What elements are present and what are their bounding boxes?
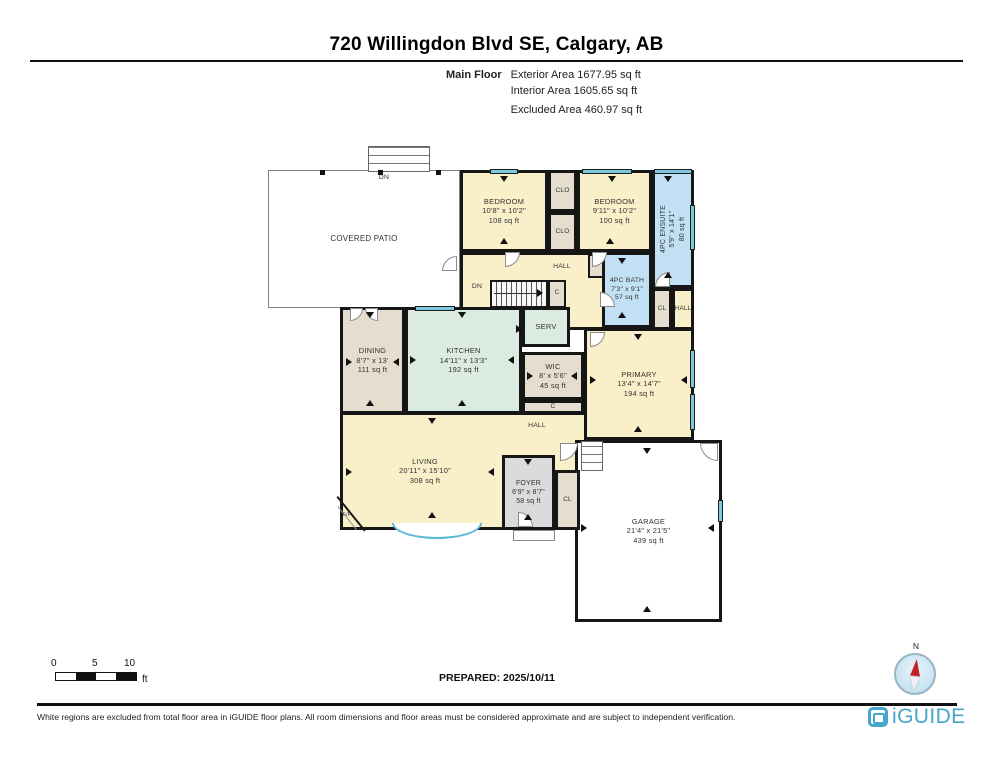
room-name: BEDROOM bbox=[484, 197, 524, 207]
scale-tick-10: 10 bbox=[124, 658, 135, 669]
closet-clo-top: CLO bbox=[548, 170, 577, 212]
room-name: WIC bbox=[545, 362, 560, 372]
iguide-logo: iGUIDE bbox=[868, 707, 966, 727]
dimension-arrow bbox=[366, 312, 374, 318]
dimension-arrow bbox=[393, 358, 399, 366]
window bbox=[582, 169, 632, 174]
room-area: 192 sq ft bbox=[448, 365, 479, 375]
compass-icon bbox=[894, 653, 936, 695]
room-area: 439 sq ft bbox=[633, 536, 664, 546]
room-area: 194 sq ft bbox=[624, 389, 655, 399]
dimension-arrow bbox=[643, 448, 651, 454]
dimension-arrow bbox=[500, 238, 508, 244]
window bbox=[690, 350, 695, 388]
dimension-arrow bbox=[516, 325, 522, 333]
closet-cl-mid: CL bbox=[652, 288, 672, 330]
dimension-arrow bbox=[500, 176, 508, 182]
dimension-arrow bbox=[428, 512, 436, 518]
bay-window bbox=[392, 523, 482, 539]
floor-plan: COVERED PATIO DN LIVING 20'11" x 15'10" … bbox=[0, 0, 993, 768]
dimension-arrow bbox=[410, 356, 416, 364]
room-ensuite: 4PC ENSUITE 5'9" x 14'1" 80 sq ft bbox=[652, 170, 694, 288]
stairs-direction-line bbox=[494, 293, 538, 294]
room-area: 111 sq ft bbox=[358, 365, 387, 375]
room-covered-patio: COVERED PATIO bbox=[268, 170, 460, 308]
dimension-arrow bbox=[366, 400, 374, 406]
room-dims: 8'7" x 13' bbox=[356, 356, 388, 366]
room-dims: 14'11" x 13'3" bbox=[440, 356, 488, 366]
room-area: 108 sq ft bbox=[489, 216, 520, 226]
dimension-arrow bbox=[643, 606, 651, 612]
room-primary: PRIMARY 13'4" x 14'7" 194 sq ft bbox=[584, 328, 694, 440]
room-area: 80 sq ft bbox=[678, 217, 688, 242]
room-dims: 8' x 5'6" bbox=[539, 371, 567, 381]
closet-label: CL bbox=[658, 304, 666, 314]
dimension-arrow bbox=[618, 258, 626, 264]
scale-bar bbox=[55, 672, 137, 681]
dimension-arrow bbox=[681, 376, 687, 384]
footer-disclaimer: White regions are excluded from total fl… bbox=[37, 712, 827, 722]
room-name: 4PC ENSUITE bbox=[659, 205, 669, 253]
window bbox=[654, 169, 692, 174]
dimension-arrow bbox=[346, 358, 352, 366]
camera-glyph bbox=[873, 713, 885, 724]
room-area: 58 sq ft bbox=[516, 497, 541, 506]
room-dims: 10'8" x 10'2" bbox=[482, 206, 526, 216]
room-bath: 4PC BATH 7'3" x 9'1" 57 sq ft bbox=[602, 252, 652, 328]
compass-needle-south bbox=[909, 676, 920, 691]
stairs-direction-arrow bbox=[537, 289, 543, 297]
room-hall-mid: HALL bbox=[672, 288, 694, 330]
dimension-arrow bbox=[458, 312, 466, 318]
serv-label: SERV bbox=[535, 322, 556, 332]
iguide-logo-icon bbox=[868, 707, 888, 727]
closet-label: C bbox=[555, 289, 560, 299]
room-dims: 5'9" x 14'1" bbox=[668, 211, 678, 248]
room-serv: SERV bbox=[522, 307, 570, 347]
window bbox=[718, 500, 723, 522]
room-dims: 7'3" x 9'1" bbox=[611, 286, 643, 295]
room-name: BEDROOM bbox=[594, 197, 634, 207]
dimension-arrow bbox=[608, 176, 616, 182]
dimension-arrow bbox=[488, 468, 494, 476]
room-name: GARAGE bbox=[632, 517, 665, 527]
room-area: 57 sq ft bbox=[615, 294, 639, 303]
dimension-arrow bbox=[508, 356, 514, 364]
closet-label: CLO bbox=[556, 186, 570, 196]
compass-needle-north bbox=[910, 659, 922, 677]
room-area: 308 sq ft bbox=[410, 476, 441, 486]
room-area: 45 sq ft bbox=[540, 381, 566, 391]
dimension-arrow bbox=[634, 426, 642, 432]
hall-label-upper: HALL bbox=[542, 263, 582, 270]
dimension-arrow bbox=[664, 176, 672, 182]
room-name: LIVING bbox=[412, 457, 438, 467]
patio-steps bbox=[368, 146, 430, 172]
closet-clo-bottom: CLO bbox=[548, 212, 577, 252]
room-name: 4PC BATH bbox=[610, 277, 644, 286]
dimension-arrow bbox=[458, 400, 466, 406]
dimension-arrow bbox=[581, 524, 587, 532]
front-step bbox=[513, 530, 555, 541]
compass-north-label: N bbox=[908, 641, 924, 651]
dimension-arrow bbox=[571, 372, 577, 380]
closet-label: CL bbox=[563, 495, 571, 505]
dimension-arrow bbox=[590, 376, 596, 384]
scale-tick-0: 0 bbox=[51, 658, 57, 669]
window bbox=[415, 306, 455, 311]
room-name: COVERED PATIO bbox=[330, 234, 397, 244]
prepared-date: PREPARED: 2025/10/11 bbox=[397, 672, 597, 684]
window bbox=[690, 205, 695, 250]
room-name: DINING bbox=[359, 346, 386, 356]
patio-post bbox=[320, 170, 325, 175]
dn-label-stairs: DN bbox=[466, 283, 488, 290]
room-dims: 20'11" x 15'10" bbox=[399, 466, 451, 476]
dimension-arrow bbox=[606, 238, 614, 244]
room-kitchen: KITCHEN 14'11" x 13'3" 192 sq ft bbox=[405, 307, 522, 414]
window bbox=[490, 169, 518, 174]
window bbox=[690, 394, 695, 430]
garage-entry-steps bbox=[581, 441, 603, 471]
room-name: KITCHEN bbox=[446, 346, 480, 356]
dimension-arrow bbox=[524, 514, 532, 520]
dimension-arrow bbox=[524, 459, 532, 465]
closet-label: CLO bbox=[556, 227, 570, 237]
hall-label: HALL bbox=[675, 304, 692, 314]
patio-post bbox=[436, 170, 441, 175]
dimension-arrow bbox=[527, 372, 533, 380]
scale-tick-5: 5 bbox=[92, 658, 98, 669]
dimension-arrow bbox=[708, 524, 714, 532]
room-dims: 21'4" x 21'5" bbox=[627, 526, 671, 536]
closet-label: C bbox=[551, 402, 556, 412]
footer-divider bbox=[37, 703, 957, 706]
closet-cl-foyer: CL bbox=[555, 470, 580, 530]
patio-post bbox=[378, 170, 383, 175]
dimension-arrow bbox=[618, 312, 626, 318]
dimension-arrow bbox=[664, 272, 672, 278]
fireplace-label: F/P bbox=[338, 512, 356, 518]
room-name: FOYER bbox=[516, 479, 541, 488]
room-name: PRIMARY bbox=[621, 370, 656, 380]
hall-label-lower: HALL bbox=[518, 422, 556, 429]
dimension-arrow bbox=[634, 334, 642, 340]
scale-unit: ft bbox=[142, 674, 148, 685]
dimension-arrow bbox=[346, 468, 352, 476]
dn-label-patio: DN bbox=[372, 174, 396, 181]
room-dims: 6'9" x 8'7" bbox=[512, 488, 545, 497]
closet-below-wic: C bbox=[522, 400, 584, 414]
room-dims: 13'4" x 14'7" bbox=[617, 379, 661, 389]
iguide-logo-text: iGUIDE bbox=[892, 707, 966, 727]
closet-by-stairs: C bbox=[548, 280, 566, 308]
dimension-arrow bbox=[428, 418, 436, 424]
